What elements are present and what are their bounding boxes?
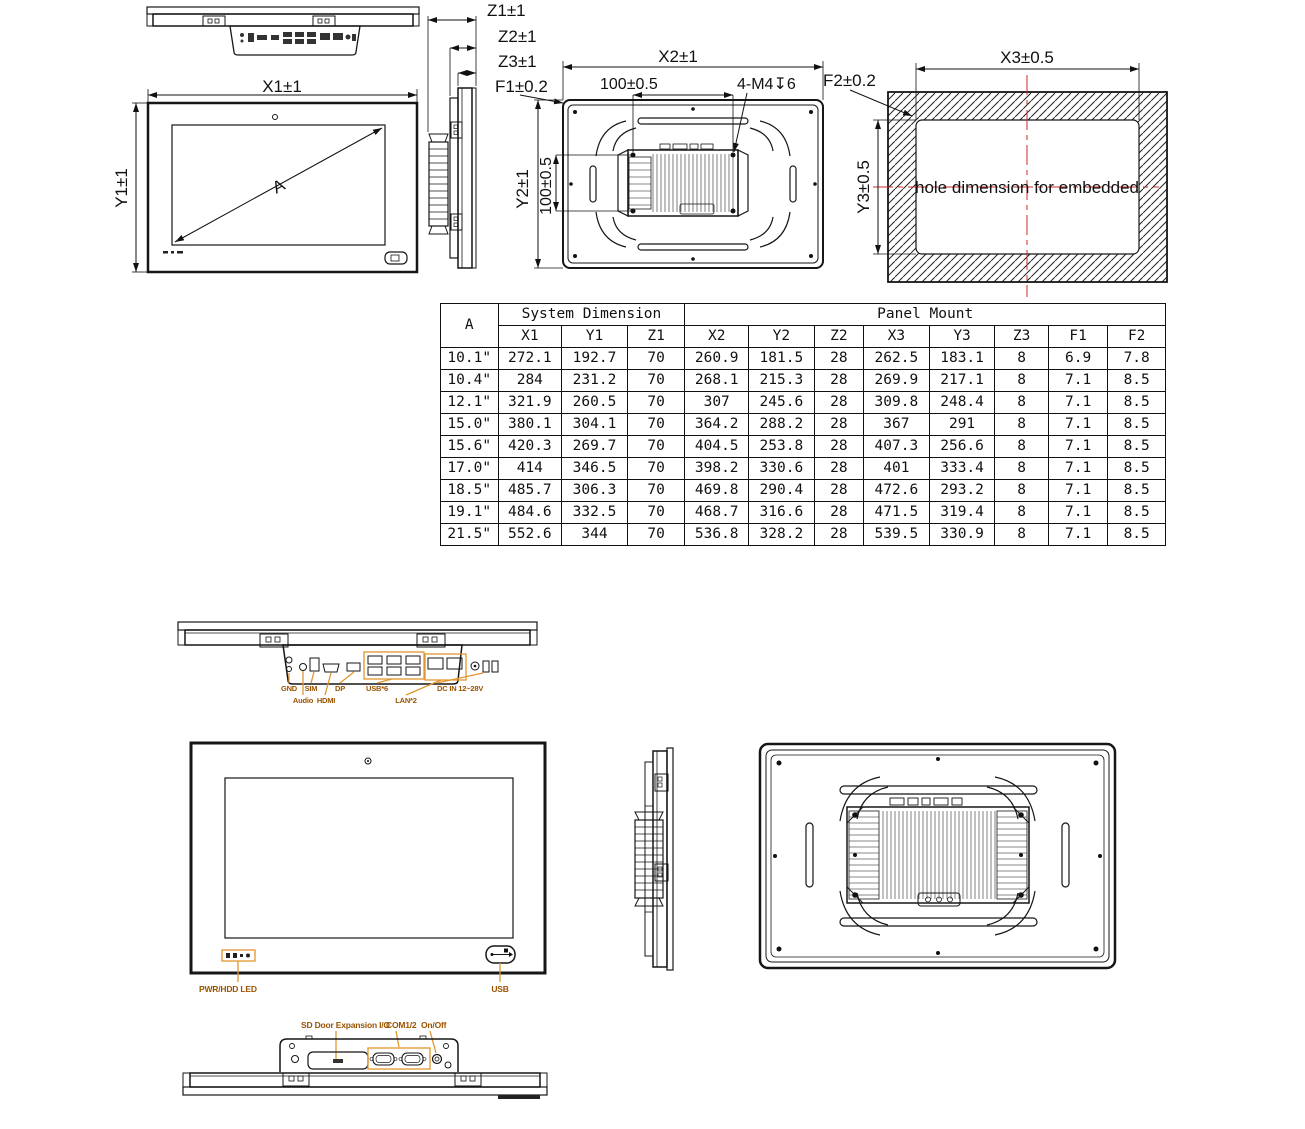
- value-cell: 262.5: [864, 348, 930, 370]
- brand-logo: [385, 252, 407, 264]
- value-cell: 8.5: [1108, 436, 1166, 458]
- value-cell: 8: [995, 436, 1048, 458]
- table-row: 15.0"380.1304.170364.2288.22836729187.18…: [441, 414, 1166, 436]
- value-cell: 70: [627, 524, 685, 546]
- value-cell: 70: [627, 502, 685, 524]
- heatsink-side: [635, 806, 663, 912]
- label-lan2: LAN*2: [395, 696, 417, 705]
- value-cell: 70: [627, 480, 685, 502]
- mount-cleats: [203, 16, 335, 26]
- value-cell: 7.1: [1048, 414, 1108, 436]
- value-cell: 269.7: [562, 436, 628, 458]
- label-hdmi: HDMI: [317, 696, 335, 705]
- value-cell: 288.2: [749, 414, 815, 436]
- value-cell: 398.2: [685, 458, 749, 480]
- value-cell: 8.5: [1108, 502, 1166, 524]
- value-cell: 183.1: [929, 348, 995, 370]
- value-cell: 468.7: [685, 502, 749, 524]
- dim-y1: Y1±1: [112, 168, 131, 208]
- table-row: 12.1"321.9260.570307245.628309.8248.487.…: [441, 392, 1166, 414]
- usb-logo: [486, 946, 515, 963]
- label-gnd: GND: [281, 684, 298, 693]
- value-cell: 330.6: [749, 458, 815, 480]
- value-cell: 472.6: [864, 480, 930, 502]
- table-col-header: X1: [498, 326, 562, 348]
- heatsink-side: [429, 134, 448, 234]
- table-col-header: F1: [1048, 326, 1108, 348]
- value-cell: 8.5: [1108, 392, 1166, 414]
- table-row: 10.1"272.1192.770260.9181.528262.5183.18…: [441, 348, 1166, 370]
- value-cell: 8: [995, 392, 1048, 414]
- dim-x3: X3±0.5: [1000, 48, 1054, 67]
- value-cell: 304.1: [562, 414, 628, 436]
- value-cell: 7.1: [1048, 502, 1108, 524]
- value-cell: 7.1: [1048, 436, 1108, 458]
- size-cell: 19.1": [441, 502, 499, 524]
- table-col-header: Z3: [995, 326, 1048, 348]
- size-cell: 10.4": [441, 370, 499, 392]
- value-cell: 290.4: [749, 480, 815, 502]
- view-hole-cutout: hole dimension for embedded X3±0.5 Y3±0.…: [815, 45, 1185, 300]
- value-cell: 306.3: [562, 480, 628, 502]
- value-cell: 28: [814, 414, 863, 436]
- power-button: [433, 1055, 442, 1064]
- view-bottom-edge-small: [145, 2, 421, 60]
- table-corner-header: A: [441, 304, 499, 348]
- size-cell: 18.5": [441, 480, 499, 502]
- value-cell: 333.4: [929, 458, 995, 480]
- table-row: 21.5"552.634470536.8328.228539.5330.987.…: [441, 524, 1166, 546]
- value-cell: 28: [814, 392, 863, 414]
- top-screw: [292, 1056, 299, 1063]
- value-cell: 7.1: [1048, 370, 1108, 392]
- value-cell: 256.6: [929, 436, 995, 458]
- value-cell: 367: [864, 414, 930, 436]
- hdmi-port: [323, 664, 339, 672]
- mount-clips-side: [451, 122, 462, 230]
- value-cell: 248.4: [929, 392, 995, 414]
- webcam-dot: [273, 115, 278, 120]
- value-cell: 8.5: [1108, 414, 1166, 436]
- value-cell: 272.1: [498, 348, 562, 370]
- dim-z1: Z1±1: [487, 1, 526, 20]
- connector-row: [240, 32, 356, 44]
- value-cell: 8.5: [1108, 480, 1166, 502]
- value-cell: 539.5: [864, 524, 930, 546]
- value-cell: 291: [929, 414, 995, 436]
- value-cell: 364.2: [685, 414, 749, 436]
- table-col-header: Y3: [929, 326, 995, 348]
- table-col-header: Z2: [814, 326, 863, 348]
- table-col-header: X2: [685, 326, 749, 348]
- value-cell: 536.8: [685, 524, 749, 546]
- value-cell: 8: [995, 524, 1048, 546]
- mount-cleats: [283, 1073, 481, 1086]
- value-cell: 7.1: [1048, 392, 1108, 414]
- value-cell: 344: [562, 524, 628, 546]
- value-cell: 328.2: [749, 524, 815, 546]
- view-front-dimensioned: A X1±1 Y1±1: [105, 80, 430, 285]
- size-cell: 10.1": [441, 348, 499, 370]
- table-col-header: F2: [1108, 326, 1166, 348]
- value-cell: 321.9: [498, 392, 562, 414]
- label-com12: COM1/2: [386, 1020, 417, 1030]
- value-cell: 420.3: [498, 436, 562, 458]
- value-cell: 269.9: [864, 370, 930, 392]
- table-row: 15.6"420.3269.770404.5253.828407.3256.68…: [441, 436, 1166, 458]
- table-col-header: Z1: [627, 326, 685, 348]
- sim-slot: [310, 658, 319, 671]
- table-row: 18.5"485.7306.370469.8290.428472.6293.28…: [441, 480, 1166, 502]
- value-cell: 28: [814, 480, 863, 502]
- value-cell: 8: [995, 502, 1048, 524]
- table-group-system: System Dimension: [498, 304, 685, 326]
- label-door-expansion: SD Door Expansion I/O: [301, 1020, 390, 1030]
- heatsink-rear: [847, 798, 1029, 906]
- value-cell: 8.5: [1108, 458, 1166, 480]
- value-cell: 28: [814, 502, 863, 524]
- value-cell: 28: [814, 370, 863, 392]
- value-cell: 552.6: [498, 524, 562, 546]
- value-cell: 181.5: [749, 348, 815, 370]
- usb-ports: [368, 656, 420, 675]
- value-cell: 7.8: [1108, 348, 1166, 370]
- table-col-header: Y1: [562, 326, 628, 348]
- view-rear-dimensioned: X2±1 100±0.5 4-M4↧6 Y2±1 100±0.5: [500, 48, 840, 283]
- value-cell: 401: [864, 458, 930, 480]
- size-cell: 17.0": [441, 458, 499, 480]
- view-top-io-labeled: SD Door Expansion I/O COM1/2 On/Off: [168, 1015, 548, 1123]
- value-cell: 268.1: [685, 370, 749, 392]
- com-ports: [370, 1053, 426, 1065]
- size-cell: 15.0": [441, 414, 499, 436]
- value-cell: 284: [498, 370, 562, 392]
- view-rear-plain: [752, 735, 1120, 983]
- table-col-header: X3: [864, 326, 930, 348]
- value-cell: 330.9: [929, 524, 995, 546]
- table-row: 17.0"414346.570398.2330.628401333.487.18…: [441, 458, 1166, 480]
- diagonal-size-label: A: [269, 175, 289, 197]
- size-cell: 12.1": [441, 392, 499, 414]
- hole-note: hole dimension for embedded: [915, 178, 1139, 197]
- dp-port: [347, 663, 360, 671]
- label-dcin: DC IN 12~28V: [437, 684, 483, 693]
- value-cell: 70: [627, 392, 685, 414]
- value-cell: 253.8: [749, 436, 815, 458]
- value-cell: 28: [814, 348, 863, 370]
- dim-f2: F2±0.2: [823, 71, 876, 90]
- dimension-table: ASystem DimensionPanel MountX1Y1Z1X2Y2Z2…: [440, 303, 1166, 546]
- value-cell: 319.4: [929, 502, 995, 524]
- label-usb6: USB*6: [366, 684, 388, 693]
- value-cell: 8: [995, 458, 1048, 480]
- label-pwr-hdd-led: PWR/HDD LED: [199, 984, 257, 994]
- table-group-panel: Panel Mount: [685, 304, 1166, 326]
- size-cell: 21.5": [441, 524, 499, 546]
- value-cell: 70: [627, 436, 685, 458]
- value-cell: 380.1: [498, 414, 562, 436]
- value-cell: 346.5: [562, 458, 628, 480]
- dim-pitch-h: 100±0.5: [600, 76, 658, 93]
- view-side-plain: [605, 738, 700, 986]
- value-cell: 407.3: [864, 436, 930, 458]
- dc-in: [471, 661, 498, 672]
- table-row: 19.1"484.6332.570468.7316.628471.5319.48…: [441, 502, 1166, 524]
- value-cell: 70: [627, 348, 685, 370]
- view-bottom-io-labeled: GND SIM DP USB*6 DC IN 12~28V Audio HDMI…: [165, 612, 550, 720]
- led-cluster: [222, 950, 255, 961]
- label-audio: Audio: [293, 696, 314, 705]
- value-cell: 70: [627, 414, 685, 436]
- value-cell: 485.7: [498, 480, 562, 502]
- dim-y2: Y2±1: [513, 169, 532, 209]
- value-cell: 8: [995, 370, 1048, 392]
- value-cell: 70: [627, 370, 685, 392]
- value-cell: 28: [814, 524, 863, 546]
- expansion-plate: [308, 1052, 368, 1069]
- dim-z2: Z2±1: [498, 27, 537, 46]
- dim-pitch-v: 100±0.5: [538, 157, 555, 215]
- value-cell: 8.5: [1108, 524, 1166, 546]
- value-cell: 469.8: [685, 480, 749, 502]
- value-cell: 217.1: [929, 370, 995, 392]
- drawing-sheet: A X1±1 Y1±1: [0, 0, 1305, 1129]
- value-cell: 8: [995, 480, 1048, 502]
- table-row: 10.4"284231.270268.1215.328269.9217.187.…: [441, 370, 1166, 392]
- value-cell: 7.1: [1048, 458, 1108, 480]
- value-cell: 70: [627, 458, 685, 480]
- value-cell: 404.5: [685, 436, 749, 458]
- audio-jack: [300, 664, 307, 671]
- case-screws: [773, 757, 1102, 955]
- value-cell: 309.8: [864, 392, 930, 414]
- label-sim: SIM: [305, 684, 318, 693]
- value-cell: 332.5: [562, 502, 628, 524]
- dim-x2: X2±1: [658, 47, 698, 66]
- size-cell: 15.6": [441, 436, 499, 458]
- value-cell: 245.6: [749, 392, 815, 414]
- dim-thread: 4-M4↧6: [737, 76, 796, 93]
- value-cell: 7.1: [1048, 524, 1108, 546]
- value-cell: 231.2: [562, 370, 628, 392]
- label-dp: DP: [335, 684, 345, 693]
- label-usb: USB: [491, 984, 508, 994]
- value-cell: 28: [814, 436, 863, 458]
- value-cell: 316.6: [749, 502, 815, 524]
- value-cell: 484.6: [498, 502, 562, 524]
- dimension-table-grid: ASystem DimensionPanel MountX1Y1Z1X2Y2Z2…: [440, 303, 1166, 546]
- bezel-marks: [163, 251, 183, 254]
- value-cell: 260.9: [685, 348, 749, 370]
- dim-y3: Y3±0.5: [854, 160, 873, 214]
- dim-x1: X1±1: [262, 77, 302, 96]
- heatsink-rear: [618, 144, 748, 216]
- value-cell: 215.3: [749, 370, 815, 392]
- value-cell: 8: [995, 414, 1048, 436]
- value-cell: 260.5: [562, 392, 628, 414]
- value-cell: 6.9: [1048, 348, 1108, 370]
- value-cell: 28: [814, 458, 863, 480]
- value-cell: 192.7: [562, 348, 628, 370]
- lan-ports: [428, 658, 462, 669]
- value-cell: 307: [685, 392, 749, 414]
- value-cell: 8.5: [1108, 370, 1166, 392]
- value-cell: 8: [995, 348, 1048, 370]
- label-onoff: On/Off: [421, 1020, 447, 1030]
- table-col-header: Y2: [749, 326, 815, 348]
- value-cell: 7.1: [1048, 480, 1108, 502]
- gnd-lug: [286, 657, 292, 663]
- value-cell: 293.2: [929, 480, 995, 502]
- view-front-io-labeled: PWR/HDD LED USB: [185, 740, 555, 1005]
- value-cell: 471.5: [864, 502, 930, 524]
- value-cell: 414: [498, 458, 562, 480]
